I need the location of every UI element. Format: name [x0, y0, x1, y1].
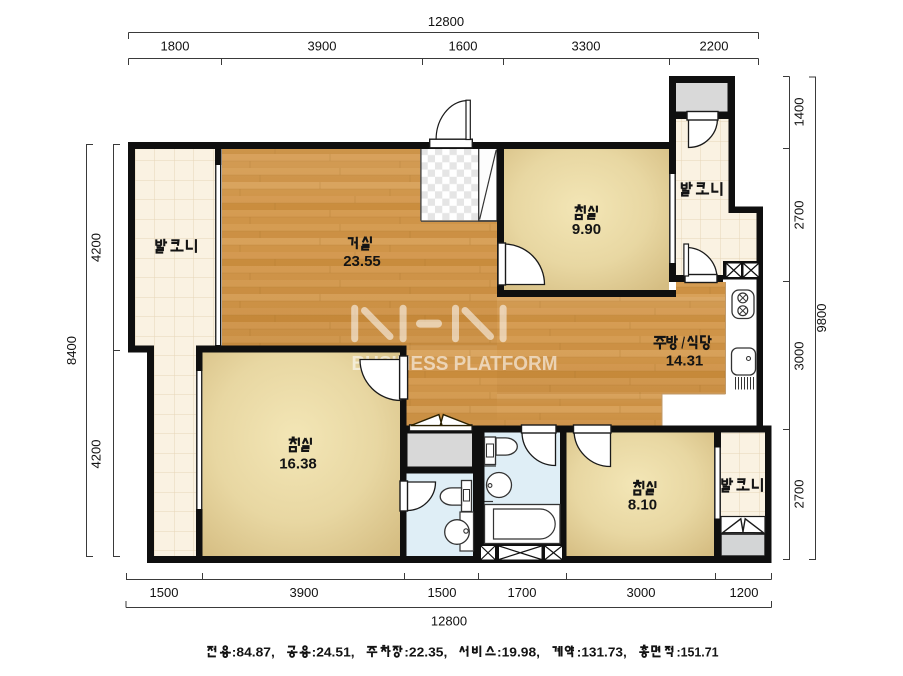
svg-text:3900: 3900: [308, 39, 337, 54]
svg-text::151.71: :151.71: [677, 644, 719, 659]
svg-text:8400: 8400: [64, 336, 79, 365]
svg-text:12800: 12800: [428, 14, 464, 29]
svg-text:12800: 12800: [431, 614, 467, 629]
svg-text:4200: 4200: [89, 440, 104, 469]
svg-text:1500: 1500: [428, 585, 457, 600]
svg-text::22.35,: :22.35,: [404, 644, 447, 659]
svg-text:2700: 2700: [792, 201, 807, 230]
svg-text:1200: 1200: [730, 585, 759, 600]
svg-text:2700: 2700: [792, 480, 807, 509]
svg-text::131.73,: :131.73,: [577, 644, 627, 659]
svg-text:4200: 4200: [89, 233, 104, 262]
svg-text:9.90: 9.90: [572, 221, 601, 238]
svg-text::19.98,: :19.98,: [497, 644, 540, 659]
svg-text:1400: 1400: [792, 98, 807, 127]
svg-text:3900: 3900: [290, 585, 319, 600]
svg-text:1800: 1800: [161, 39, 190, 54]
svg-text:23.55: 23.55: [343, 253, 381, 270]
svg-text:3000: 3000: [627, 585, 656, 600]
svg-text:1600: 1600: [449, 39, 478, 54]
svg-text:14.31: 14.31: [666, 353, 704, 370]
svg-text::84.87,: :84.87,: [232, 644, 275, 659]
svg-text:9800: 9800: [814, 304, 829, 333]
svg-text:16.38: 16.38: [279, 456, 317, 473]
svg-text:3000: 3000: [792, 342, 807, 371]
svg-text::24.51,: :24.51,: [312, 644, 355, 659]
svg-text:2200: 2200: [700, 39, 729, 54]
svg-text:3300: 3300: [572, 39, 601, 54]
svg-text:1500: 1500: [150, 585, 179, 600]
svg-text:8.10: 8.10: [628, 497, 657, 514]
svg-text:1700: 1700: [508, 585, 537, 600]
